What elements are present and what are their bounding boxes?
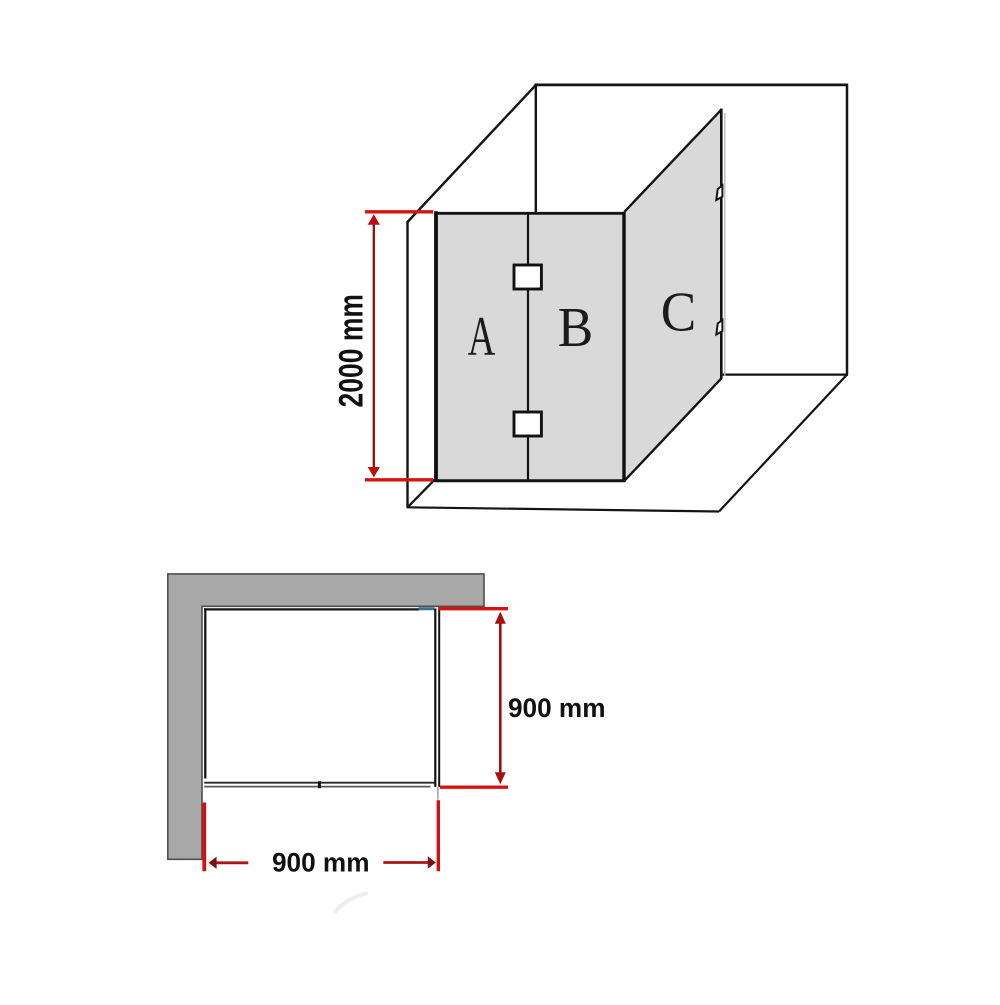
svg-text:C: C (661, 280, 696, 343)
svg-text:900 mm: 900 mm (508, 692, 605, 722)
svg-text:900 mm: 900 mm (272, 847, 369, 877)
svg-text:2000 mm: 2000 mm (332, 294, 370, 408)
svg-text:B: B (558, 296, 593, 359)
svg-text:A: A (468, 306, 496, 368)
